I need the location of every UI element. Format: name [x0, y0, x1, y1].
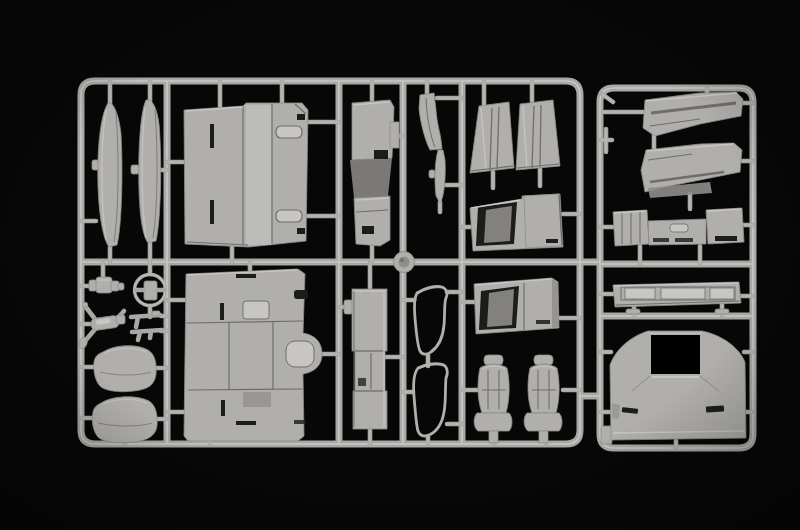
sprue-photo: Sprue runner frame Narrow side skirt pan…: [0, 0, 800, 530]
vignette-overlay: [0, 0, 800, 530]
photo-canvas: Sprue runner frame Narrow side skirt pan…: [0, 0, 800, 530]
